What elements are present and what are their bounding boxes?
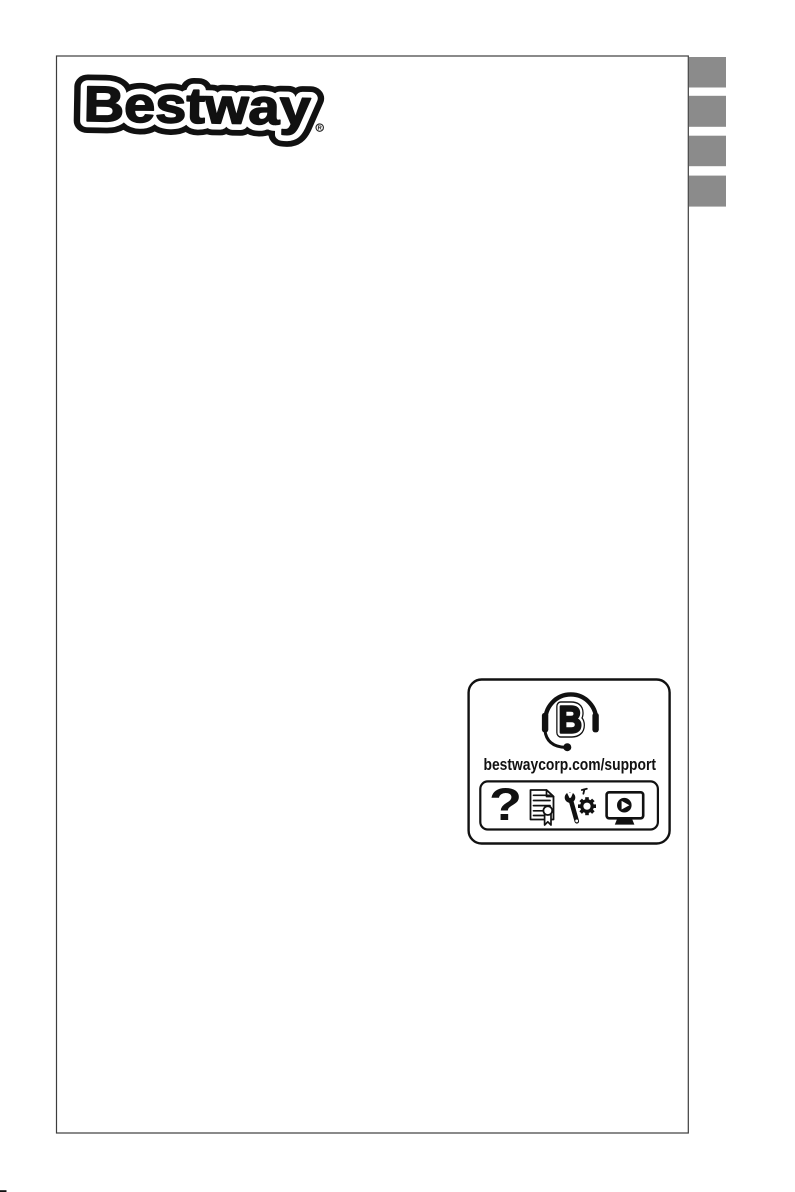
svg-text:?: ? [489,779,522,830]
svg-text:B: B [559,700,583,742]
svg-text:R: R [317,126,322,132]
svg-text:Bestway: Bestway [83,76,311,136]
svg-text:bestwaycorp.com/support: bestwaycorp.com/support [484,755,657,774]
